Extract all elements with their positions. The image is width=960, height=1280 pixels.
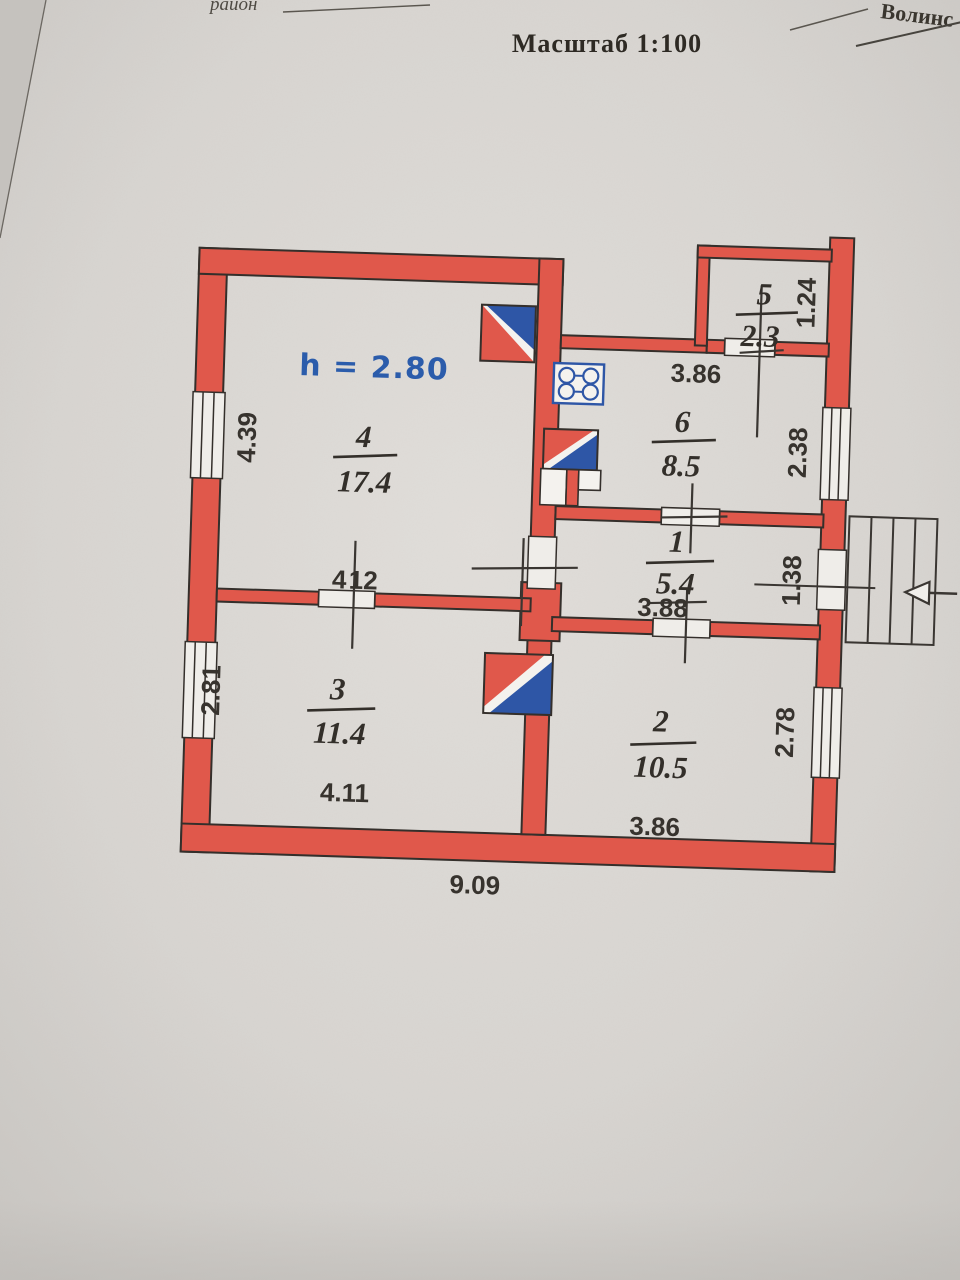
ceiling-height-note: h = 2.80 xyxy=(299,348,449,388)
room-6-area: 8.5 xyxy=(661,447,701,483)
floorplan-photo: район Волинс Масштаб 1:100 xyxy=(0,0,960,1280)
window-right-top xyxy=(820,407,851,500)
dim-kitchen-top: 3.86 xyxy=(670,358,722,390)
room-5-area: 2.3 xyxy=(739,318,780,354)
dim-hall: 3.88 xyxy=(637,592,689,624)
partition-4-3-left xyxy=(217,588,319,604)
window-right-bottom xyxy=(811,687,842,778)
chimney-flue-icon xyxy=(480,305,536,363)
dim-room2-bottom: 3.86 xyxy=(629,811,681,843)
dim-right-window-top: 2.38 xyxy=(782,427,814,479)
partition-1-2-right xyxy=(710,622,820,639)
dim-left-window-top: 4.39 xyxy=(231,412,263,464)
dim-entrance-door: 1.38 xyxy=(776,555,808,607)
dim-porch-side: 1.24 xyxy=(790,277,822,329)
partition-6-1-left xyxy=(555,506,661,522)
dim-left-window-bottom: 2.81 xyxy=(195,665,227,717)
door-4-1-opening xyxy=(527,536,557,589)
partition-6-1-right xyxy=(719,511,823,527)
dim-room3-top-left: 4 xyxy=(332,564,348,594)
kitchen-top-wall-b xyxy=(707,340,725,354)
dim-right-window-bottom: 2.78 xyxy=(769,707,801,759)
entrance-door-opening xyxy=(817,549,847,610)
dim-room3-top-right: 12 xyxy=(348,565,378,596)
dim-room3-bottom: 4.11 xyxy=(320,777,370,809)
room-2-area: 10.5 xyxy=(633,749,688,786)
room-3-number: 3 xyxy=(329,671,347,707)
scale-title: Масштаб 1:100 xyxy=(512,29,702,58)
room-5-number: 5 xyxy=(756,276,773,311)
flue-block-small xyxy=(578,470,601,491)
room-6-number: 6 xyxy=(674,404,691,439)
flue-block xyxy=(540,469,567,506)
room-3-area: 11.4 xyxy=(313,715,367,752)
room-1-number: 1 xyxy=(668,524,685,559)
window-left-top xyxy=(190,392,225,479)
room-2-number: 2 xyxy=(652,703,670,739)
dim-overall-bottom: 9.09 xyxy=(449,869,501,901)
furnace-flue-icon xyxy=(483,653,553,715)
room-4-number: 4 xyxy=(355,419,373,455)
porch-left-wall xyxy=(695,245,710,345)
flue-block-red xyxy=(566,469,579,505)
room-4-area: 17.4 xyxy=(337,463,392,500)
gas-stove-icon xyxy=(553,363,604,405)
header-script-left: район xyxy=(208,0,257,15)
